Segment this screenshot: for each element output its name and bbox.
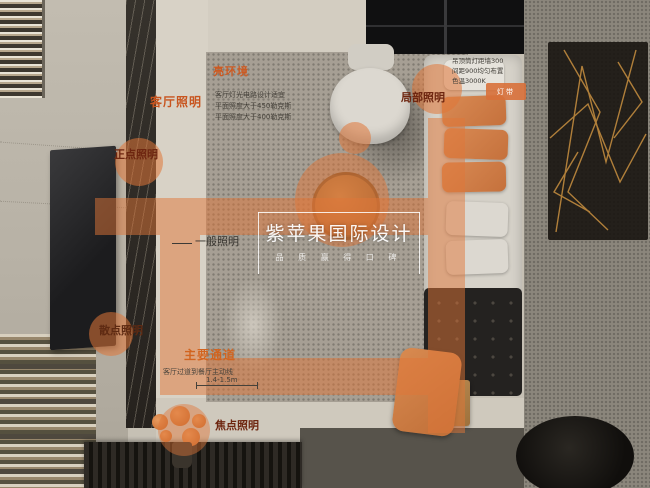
floor-walkway bbox=[156, 0, 208, 448]
sofa-orange-cushion bbox=[443, 128, 508, 160]
label-local-lighting: 局部照明 bbox=[401, 92, 445, 104]
flower-vase bbox=[172, 442, 192, 468]
tv-screen bbox=[50, 146, 116, 351]
interior-lighting-plan-render: 亮环境 客厅灯光电路设计适宜 平面照度大于450勒克斯 平面照度大于400勒克斯… bbox=[0, 0, 650, 488]
leader-line bbox=[172, 243, 192, 244]
orange-flower bbox=[152, 414, 168, 430]
dimension-line bbox=[196, 385, 258, 386]
ambient-environment-note: 客厅灯光电路设计适宜 平面照度大于450勒克斯 平面照度大于400勒克斯 bbox=[215, 90, 319, 123]
watermark-title: 紫苹果国际设计 bbox=[258, 219, 420, 246]
label-spot-lighting: 正点照明 bbox=[114, 149, 158, 161]
orange-armchair bbox=[391, 347, 463, 438]
label-focal-lighting: 焦点照明 bbox=[215, 420, 259, 432]
orange-flower bbox=[192, 414, 206, 428]
label-scatter-lighting: 散点照明 bbox=[99, 325, 143, 337]
label-main-passage: 主要通道 bbox=[184, 349, 236, 362]
orange-flower bbox=[160, 430, 172, 442]
brand-watermark: 紫苹果国际设计 品 质 赢 得 口 碑 bbox=[258, 206, 420, 280]
watermark-subtitle: 品 质 赢 得 口 碑 bbox=[258, 252, 420, 263]
label-living-room-lighting: 客厅照明 bbox=[150, 96, 202, 109]
round-side-table bbox=[516, 416, 634, 488]
orange-tag-badge: 灯带 bbox=[486, 83, 526, 100]
orange-flower bbox=[170, 406, 190, 426]
note-line: 客厅灯光电路设计适宜 bbox=[215, 90, 319, 101]
watermark-frame-line bbox=[258, 212, 420, 213]
label-general-lighting: 一般照明 bbox=[195, 236, 239, 248]
sofa-white-cushion bbox=[445, 239, 508, 275]
marble-column bbox=[126, 0, 156, 428]
passage-dimension: 1.4-1.5m bbox=[206, 376, 238, 384]
note-line: 平面照度大于450勒克斯 bbox=[215, 101, 319, 112]
bookshelf-bottom-left bbox=[0, 334, 96, 488]
note-line: 平面照度大于400勒克斯 bbox=[215, 112, 319, 123]
note-line: 间距900均匀布置 bbox=[452, 67, 532, 77]
sofa-white-cushion bbox=[445, 201, 508, 237]
gold-screen-lines bbox=[548, 42, 648, 240]
white-armchair bbox=[330, 68, 410, 144]
floor-dark-area bbox=[300, 428, 526, 488]
ottoman bbox=[348, 44, 394, 70]
sofa-orange-cushion bbox=[442, 161, 507, 192]
label-ambient-environment: 亮环境 bbox=[213, 66, 249, 78]
slatted-media-console bbox=[84, 442, 302, 488]
gold-screen-panel bbox=[548, 42, 648, 240]
ceiling-downlight-note: 吊顶筒灯距墙300 间距900均匀布置 色温3000K bbox=[452, 57, 532, 86]
bookshelf-top-left bbox=[0, 0, 45, 98]
note-line: 吊顶筒灯距墙300 bbox=[452, 57, 532, 67]
